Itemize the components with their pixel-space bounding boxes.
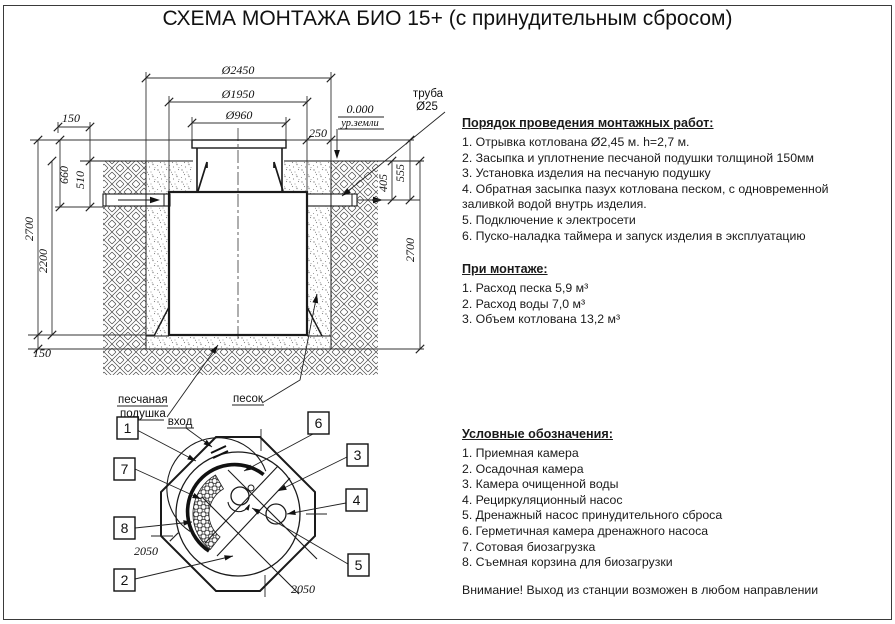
- page: СХЕМА МОНТАЖА БИО 15+ (с принудительным …: [0, 0, 895, 624]
- installation-heading: При монтаже:: [462, 261, 874, 277]
- legend-heading: Условные обозначения:: [462, 426, 874, 442]
- callout-8: 8: [121, 520, 129, 536]
- pipe-label-2: Ø25: [416, 101, 438, 113]
- procedure-item: 3. Установка изделия на песчаную подушку: [462, 166, 874, 182]
- legend-item: 7. Сотовая биозагрузка: [462, 540, 874, 556]
- procedure-section: Порядок проведения монтажных работ: 1. О…: [462, 115, 874, 244]
- dim-510: 510: [73, 171, 87, 189]
- procedure-item: 5. Подключение к электросети: [462, 213, 874, 229]
- dim-2050-left: 2050: [134, 544, 158, 558]
- dim-d2450: Ø2450: [221, 63, 255, 77]
- callout-3: 3: [354, 447, 362, 463]
- legend-item: 1. Приемная камера: [462, 446, 874, 462]
- dim-250: 250: [309, 126, 327, 140]
- callout-4: 4: [353, 492, 361, 508]
- dim-660: 660: [57, 166, 71, 184]
- dim-d1950: Ø1950: [221, 87, 255, 101]
- dim-150-bottom: 150: [33, 346, 51, 360]
- callout-7: 7: [121, 461, 129, 477]
- legend-item: 5. Дренажный насос принудительного сброс…: [462, 508, 874, 524]
- dim-405: 405: [376, 174, 390, 192]
- legend-section: Условные обозначения: 1. Приемная камера…: [462, 426, 874, 571]
- installation-item: 2. Расход воды 7,0 м³: [462, 297, 874, 313]
- legend-item: 8. Съемная корзина для биозагрузки: [462, 555, 874, 571]
- legend-item: 6. Герметичная камера дренажного насоса: [462, 524, 874, 540]
- procedure-heading: Порядок проведения монтажных работ:: [462, 115, 874, 131]
- installation-item: 3. Объем котлована 13,2 м³: [462, 312, 874, 328]
- dim-150-top: 150: [62, 111, 80, 125]
- installation-item: 1. Расход песка 5,9 м³: [462, 281, 874, 297]
- dim-2050-bottom: 2050: [291, 582, 315, 596]
- legend-item: 4. Рециркуляционный насос: [462, 493, 874, 509]
- dim-level: 0.000: [347, 102, 374, 116]
- label-sand-cushion-1: песчаная: [118, 394, 168, 406]
- callout-5: 5: [355, 557, 363, 573]
- installation-section: При монтаже: 1. Расход песка 5,9 м³ 2. Р…: [462, 261, 874, 328]
- legend-item: 3. Камера очищенной воды: [462, 477, 874, 493]
- legend-item: 2. Осадочная камера: [462, 462, 874, 478]
- dim-ground-level: ур.земли: [340, 118, 378, 129]
- dim-2200: 2200: [36, 249, 50, 273]
- installation-drawing: Ø2450 Ø1950 Ø960 0.000 ур.земли труба Ø2…: [0, 0, 460, 624]
- label-inlet: вход: [168, 416, 193, 428]
- procedure-item: 2. Засыпка и уплотнение песчаной подушки…: [462, 151, 874, 167]
- warning-note: Внимание! Выход из станции возможен в лю…: [462, 583, 882, 597]
- callout-1: 1: [124, 420, 132, 436]
- callout-2: 2: [121, 572, 129, 588]
- procedure-item: 6. Пуско-наладка таймера и запуск издели…: [462, 229, 874, 245]
- dim-d960: Ø960: [225, 108, 253, 122]
- pipe-label-1: труба: [413, 88, 444, 100]
- callout-6: 6: [315, 415, 323, 431]
- dim-2700-left: 2700: [22, 217, 36, 241]
- dim-2700-right: 2700: [403, 238, 417, 262]
- dim-555: 555: [393, 164, 407, 182]
- procedure-item: 4. Обратная засыпка пазух котлована песк…: [462, 182, 862, 213]
- procedure-item: 1. Отрывка котлована Ø2,45 м. h=2,7 м.: [462, 135, 874, 151]
- top-view: вход 2050 2050 1 2 3 4 5 6: [114, 412, 369, 597]
- label-sand: песок: [233, 393, 264, 405]
- cross-section: Ø2450 Ø1950 Ø960 0.000 ур.земли труба Ø2…: [22, 63, 445, 420]
